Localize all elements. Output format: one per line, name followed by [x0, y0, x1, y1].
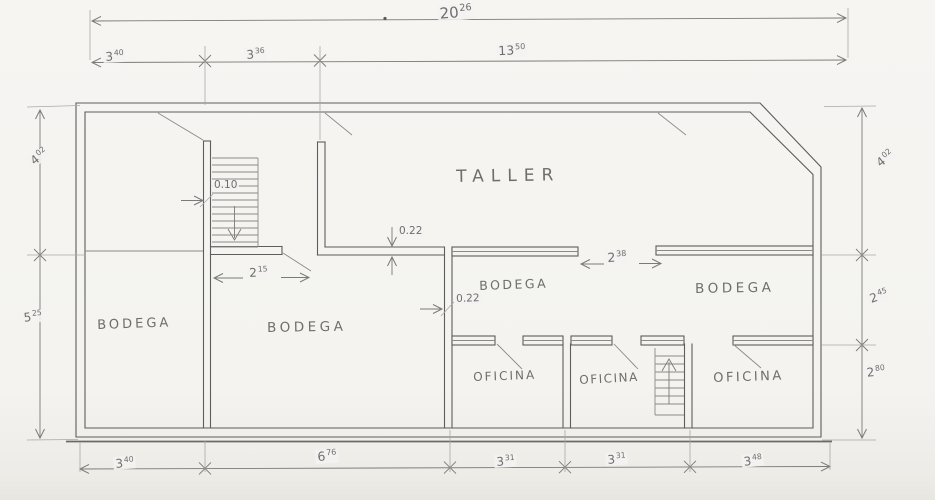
dim-bottom-1: 340	[113, 455, 136, 470]
room-label-taller: TALLER	[456, 167, 560, 186]
room-label-oficina-2: OFICINA	[579, 371, 639, 386]
room-label-oficina-1: OFICINA	[473, 369, 536, 383]
reference-dot	[383, 17, 386, 20]
dim-bodega-opening: 215	[247, 265, 270, 279]
dim-top-1: 340	[103, 49, 126, 63]
room-label-oficina-3: OFICINA	[713, 370, 784, 385]
dim-top-2: 336	[244, 47, 267, 61]
outer-wall	[66, 103, 832, 442]
floor-plan-drawing	[0, 0, 935, 500]
dim-bottom-5: 348	[741, 453, 765, 468]
room-label-bodega-left: BODEGA	[97, 316, 172, 332]
dim-bottom-4: 331	[605, 451, 628, 466]
dim-wall-thickness-taller: 0.22	[397, 226, 424, 237]
dim-corridor-opening: 238	[605, 250, 629, 265]
dim-wall-thickness-mid: 0.22	[454, 293, 482, 304]
dim-right-3: 280	[864, 364, 888, 379]
door-swings	[158, 113, 761, 369]
room-label-bodega-right: BODEGA	[695, 282, 775, 297]
stair-down	[211, 158, 258, 247]
dim-bottom-2: 676	[315, 448, 339, 463]
room-label-bodega-middle: BODEGA	[479, 278, 548, 293]
dim-top-total: 2026	[437, 3, 475, 22]
dim-stair-tread: 0.10	[212, 180, 239, 191]
dim-bottom-3: 331	[494, 454, 517, 468]
room-label-bodega-center: BODEGA	[267, 321, 347, 336]
floor-plan-sheet: TALLER BODEGA BODEGA BODEGA BODEGA OFICI…	[0, 0, 935, 500]
stair-up	[655, 348, 684, 415]
dim-top-3: 1350	[496, 43, 528, 58]
dim-left-2: 525	[21, 309, 45, 324]
